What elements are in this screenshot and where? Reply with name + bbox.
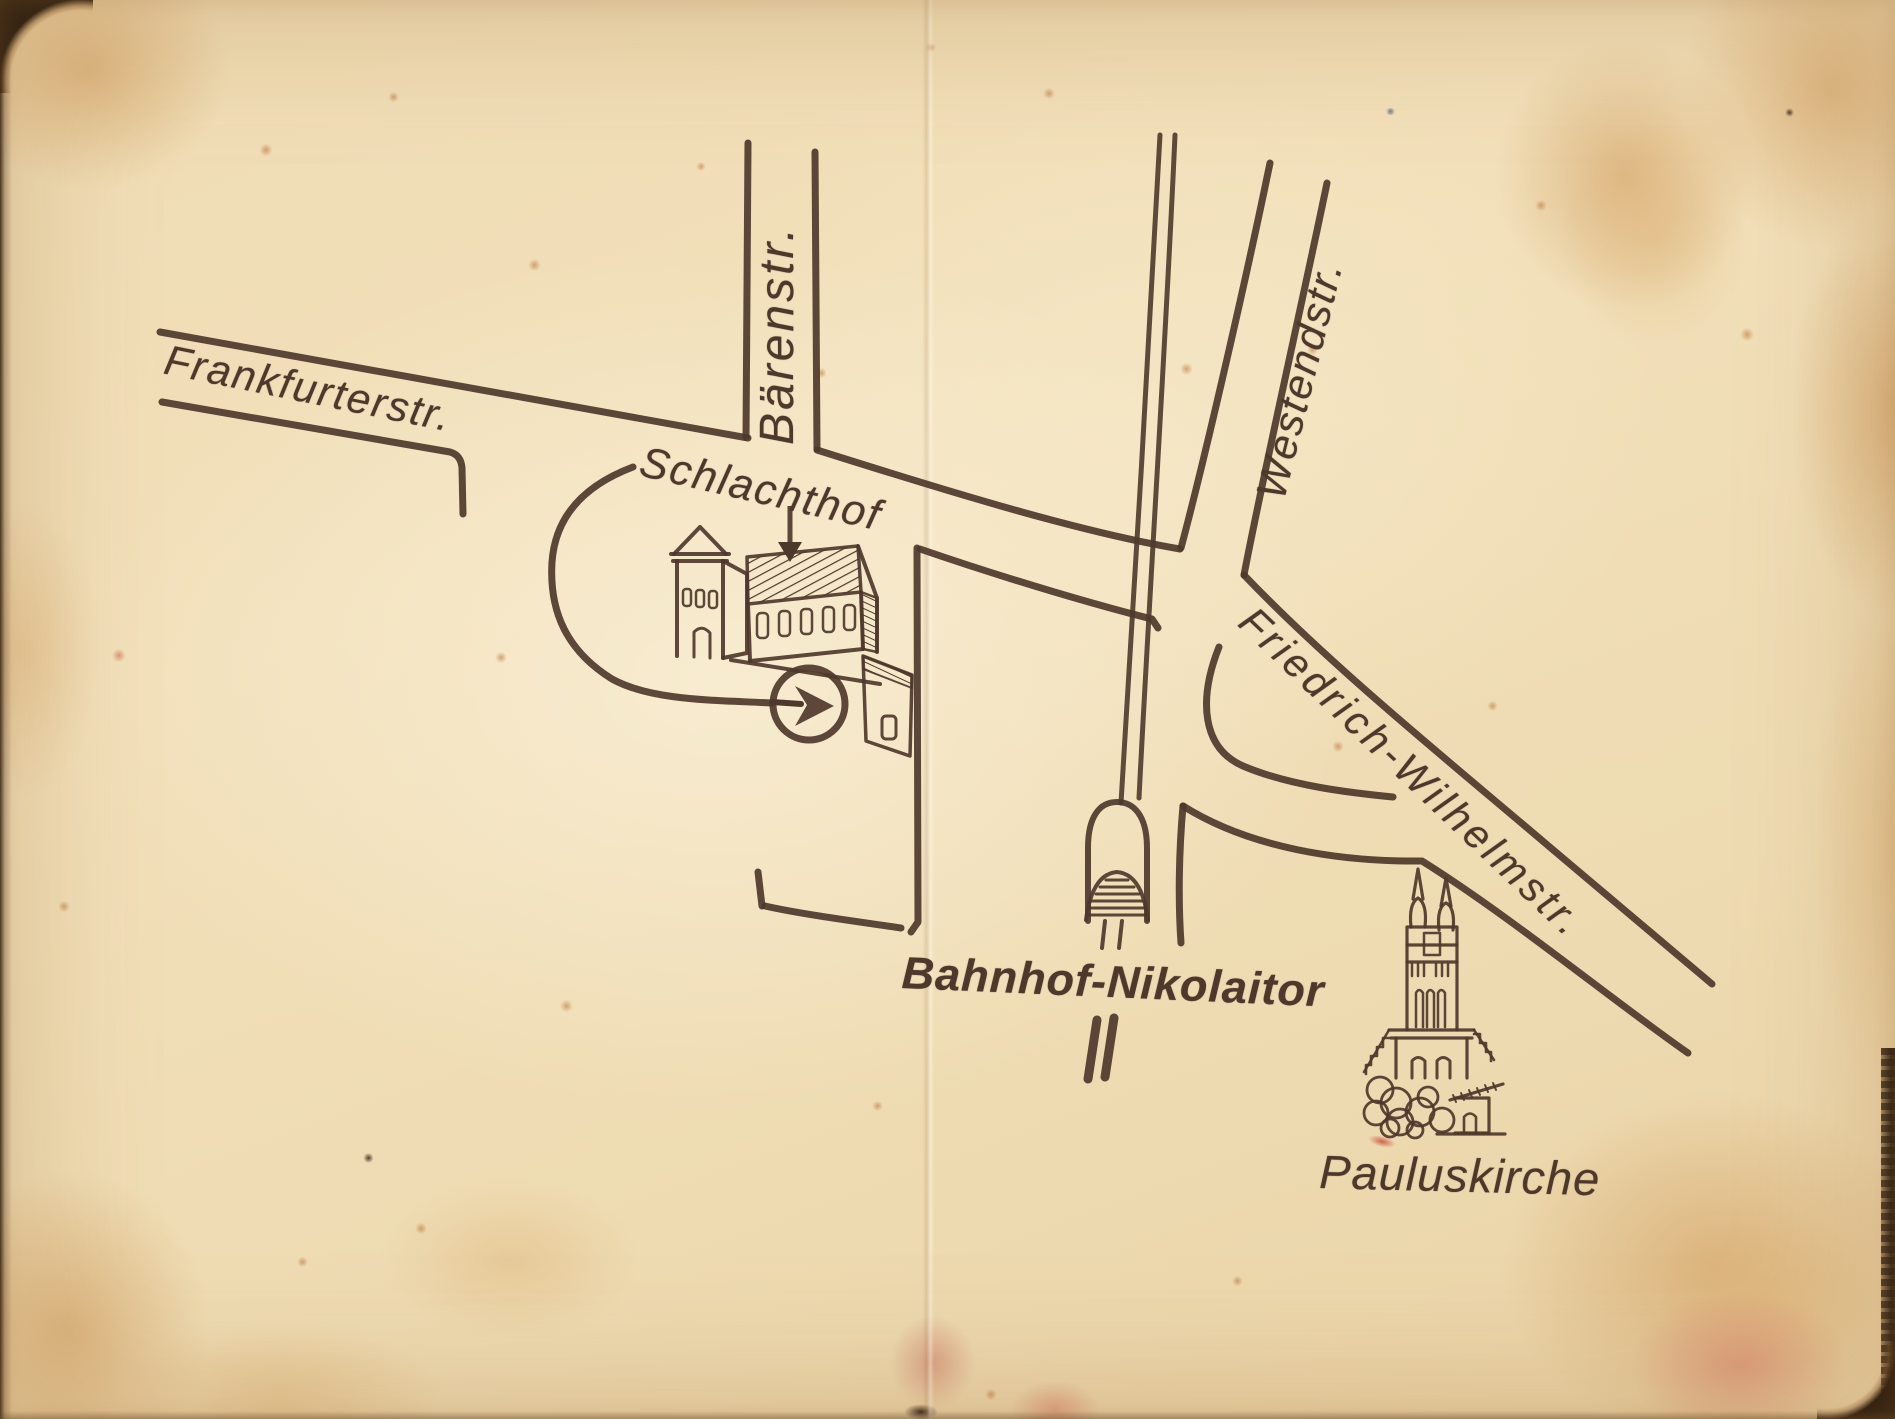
landmark-label-pauluskirche: Pauluskirche xyxy=(1319,1144,1601,1206)
map-paper: Frankfurterstr. Bärenstr. Westendstr. Fr… xyxy=(0,0,1895,1419)
road-friedrich-wilhelmstr-top xyxy=(1244,575,1712,984)
scan-edge-left xyxy=(0,0,12,1419)
scan-corner-top-left xyxy=(0,0,93,93)
scan-edge-bottom xyxy=(0,1411,1895,1419)
road-friedrich-wilhelmstr-bottom xyxy=(1183,806,1688,1053)
roads xyxy=(160,143,1712,1053)
station-symbol xyxy=(1086,802,1148,948)
pauluskirche-illustration xyxy=(1364,869,1505,1138)
street-label-baerenstr: Bärenstr. xyxy=(750,225,805,445)
road-station-street-right xyxy=(1179,806,1183,943)
map-drawing xyxy=(0,0,1895,1419)
road-block-corner xyxy=(758,872,762,906)
double-tick-mark xyxy=(1088,1018,1114,1079)
road-baerenstr-right xyxy=(815,152,817,449)
schlachthof-building xyxy=(671,527,912,756)
railway-line xyxy=(1121,135,1175,803)
road-block-bottom xyxy=(765,906,901,928)
scan-corner-bottom-right xyxy=(1817,1341,1895,1419)
entrance-circle-arrow-icon xyxy=(772,668,845,740)
road-baerenstr-left xyxy=(746,143,748,437)
road-main-bottom xyxy=(920,549,1158,628)
